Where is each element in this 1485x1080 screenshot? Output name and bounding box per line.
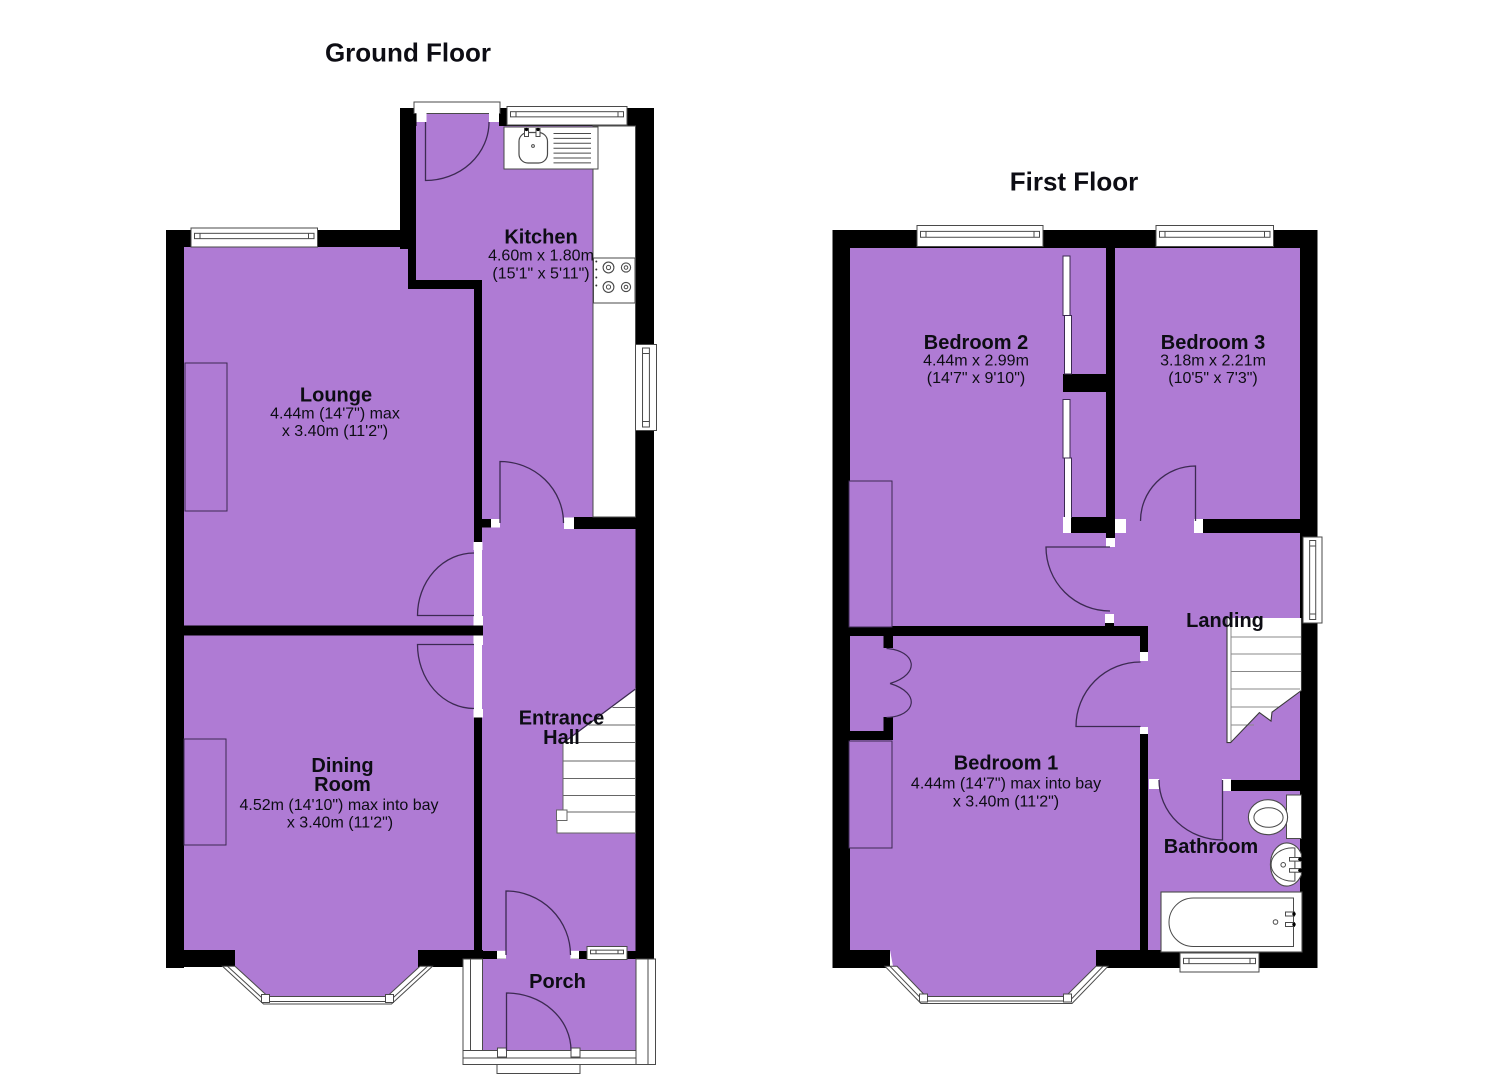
svg-text:x 3.40m (11'2"): x 3.40m (11'2") [282, 423, 388, 440]
svg-text:Room: Room [314, 774, 371, 796]
svg-text:Lounge: Lounge [300, 385, 372, 407]
svg-text:Porch: Porch [529, 971, 586, 993]
svg-text:Bedroom 3: Bedroom 3 [1161, 332, 1265, 354]
svg-text:(15'1" x 5'11"): (15'1" x 5'11") [492, 266, 589, 283]
svg-text:First Floor: First Floor [1010, 167, 1139, 197]
svg-text:3.18m x 2.21m: 3.18m x 2.21m [1160, 353, 1266, 370]
svg-text:Ground Floor: Ground Floor [325, 38, 491, 68]
svg-text:4.44m (14'7") max into bay: 4.44m (14'7") max into bay [911, 776, 1101, 793]
svg-text:4.44m x 2.99m: 4.44m x 2.99m [923, 353, 1029, 370]
svg-text:4.60m x 1.80m: 4.60m x 1.80m [488, 248, 594, 265]
svg-text:Bedroom 2: Bedroom 2 [924, 332, 1028, 354]
svg-text:Bathroom: Bathroom [1164, 836, 1258, 858]
svg-text:4.44m (14'7") max: 4.44m (14'7") max [270, 406, 400, 423]
svg-text:Landing: Landing [1186, 610, 1264, 632]
svg-text:4.52m (14'10") max into bay: 4.52m (14'10") max into bay [239, 797, 438, 814]
svg-text:(10'5" x 7'3"): (10'5" x 7'3") [1168, 370, 1258, 387]
svg-text:x 3.40m (11'2"): x 3.40m (11'2") [287, 815, 393, 832]
svg-text:Bedroom 1: Bedroom 1 [954, 753, 1058, 775]
svg-text:Kitchen: Kitchen [504, 227, 577, 249]
svg-text:Hall: Hall [543, 727, 580, 749]
svg-text:x 3.40m (11'2"): x 3.40m (11'2") [953, 794, 1059, 811]
svg-text:(14'7" x 9'10"): (14'7" x 9'10") [927, 370, 1025, 387]
